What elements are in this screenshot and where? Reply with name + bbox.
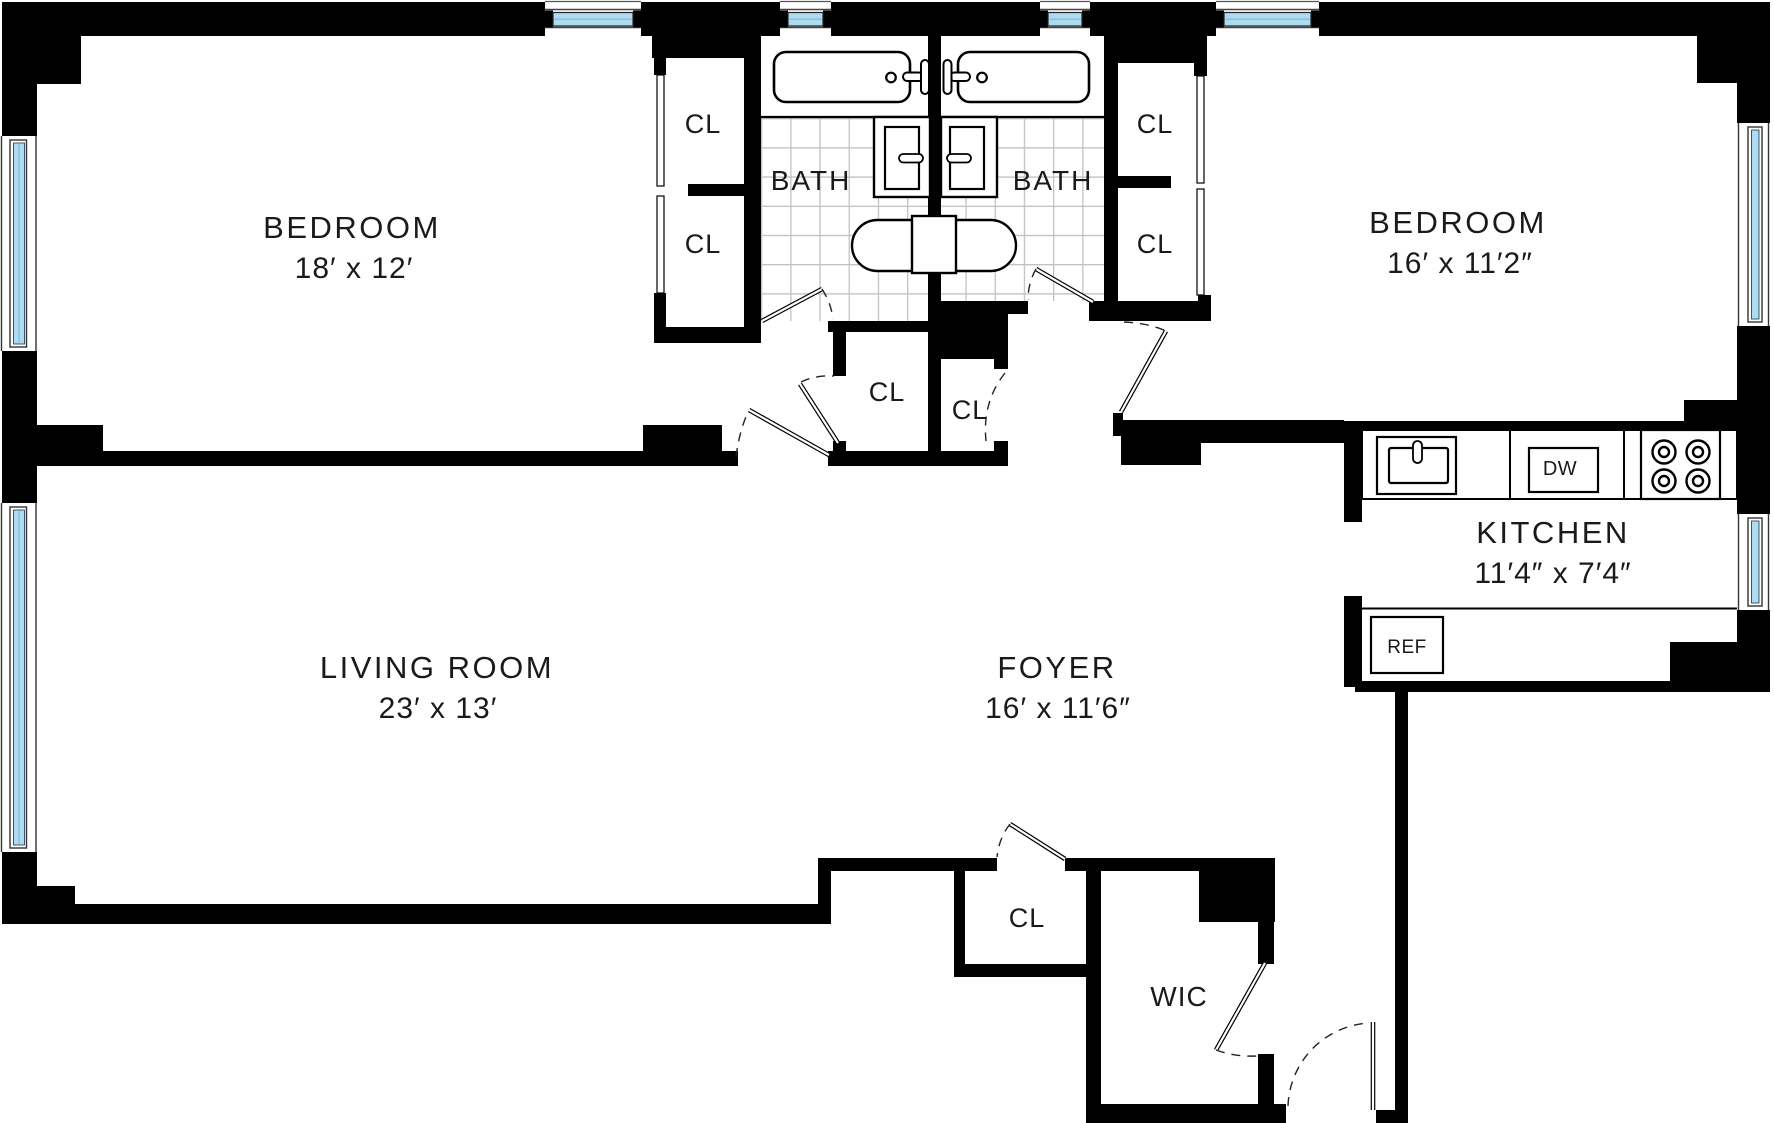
svg-text:CL: CL xyxy=(869,377,906,407)
svg-text:CL: CL xyxy=(1137,109,1174,139)
svg-text:DW: DW xyxy=(1543,458,1577,480)
svg-text:CL: CL xyxy=(1137,229,1174,259)
svg-text:LIVING ROOM: LIVING ROOM xyxy=(320,650,554,685)
svg-text:CL: CL xyxy=(1009,903,1046,933)
svg-text:FOYER: FOYER xyxy=(997,650,1116,685)
svg-text:KITCHEN: KITCHEN xyxy=(1476,515,1630,550)
svg-text:23′ x 13′: 23′ x 13′ xyxy=(379,692,498,725)
svg-text:CL: CL xyxy=(952,395,989,425)
svg-text:CL: CL xyxy=(685,229,722,259)
svg-text:16′ x 11′2″: 16′ x 11′2″ xyxy=(1387,247,1533,280)
svg-text:BATH: BATH xyxy=(771,165,852,196)
svg-text:CL: CL xyxy=(685,109,722,139)
svg-text:WIC: WIC xyxy=(1150,981,1207,1012)
svg-text:18′ x 12′: 18′ x 12′ xyxy=(295,252,414,285)
svg-text:11′4″ x 7′4″: 11′4″ x 7′4″ xyxy=(1474,557,1631,590)
svg-text:REF: REF xyxy=(1387,637,1427,658)
svg-text:BATH: BATH xyxy=(1013,165,1094,196)
svg-text:BEDROOM: BEDROOM xyxy=(1369,205,1547,240)
svg-text:BEDROOM: BEDROOM xyxy=(263,210,441,245)
svg-text:16′ x 11′6″: 16′ x 11′6″ xyxy=(985,692,1131,725)
